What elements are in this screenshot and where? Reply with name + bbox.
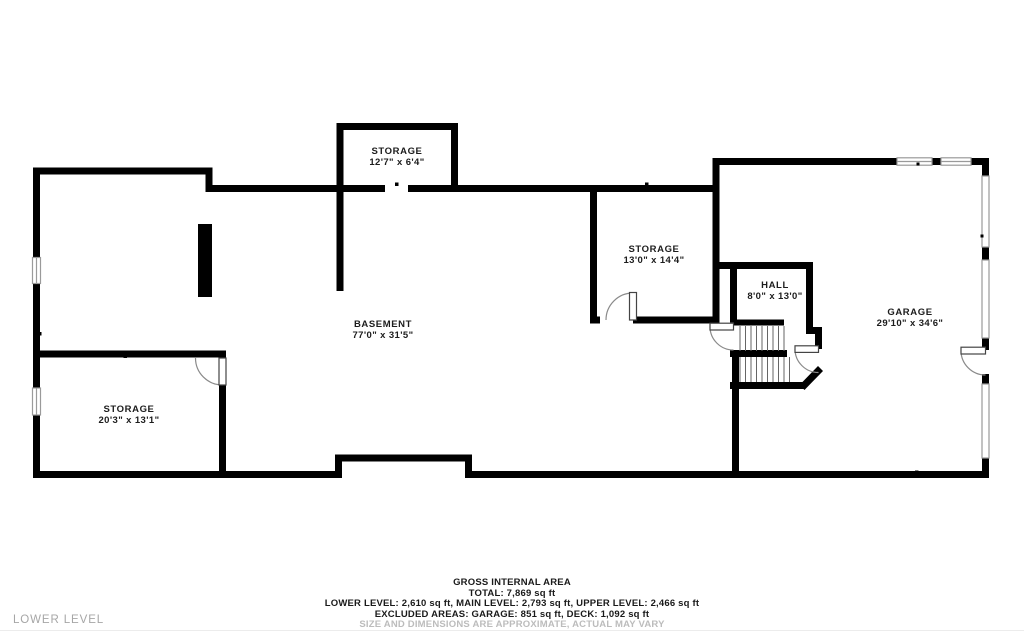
- bottom-divider: [0, 630, 1024, 631]
- room-dims: 77'0" x 31'5": [313, 330, 453, 341]
- summary-title: GROSS INTERNAL AREA: [0, 578, 1024, 588]
- door-leaf-left-storage: [219, 358, 226, 385]
- door-leaf-mid-storage: [630, 293, 637, 321]
- chimney-pillar: [198, 224, 212, 297]
- door-leaf-stair-garage: [795, 346, 819, 353]
- floor-plan-page: STORAGE 12'7" x 6'4" STORAGE 13'0" x 14'…: [0, 0, 1024, 639]
- room-name: STORAGE: [584, 244, 724, 255]
- room-dims: 20'3" x 13'1": [59, 415, 199, 426]
- room-name: STORAGE: [327, 146, 467, 157]
- summary-total: TOTAL: 7,869 sq ft: [0, 589, 1024, 599]
- area-summary: GROSS INTERNAL AREA TOTAL: 7,869 sq ft L…: [0, 578, 1024, 631]
- room-dims: 8'0" x 13'0": [705, 291, 845, 302]
- summary-excluded: EXCLUDED AREAS: GARAGE: 851 sq ft, DECK:…: [0, 610, 1024, 620]
- room-dims: 12'7" x 6'4": [327, 157, 467, 168]
- summary-disclaimer: SIZE AND DIMENSIONS ARE APPROXIMATE, ACT…: [0, 620, 1024, 630]
- room-name: GARAGE: [840, 307, 980, 318]
- room-name: STORAGE: [59, 404, 199, 415]
- room-name: BASEMENT: [313, 319, 453, 330]
- room-dims: 13'0" x 14'4": [584, 255, 724, 266]
- room-label-storage-top: STORAGE 12'7" x 6'4": [327, 146, 467, 168]
- door-leaf-garage-right: [961, 347, 986, 354]
- room-dims: 29'10" x 34'6": [840, 318, 980, 329]
- room-label-garage: GARAGE 29'10" x 34'6": [840, 307, 980, 329]
- summary-levels: LOWER LEVEL: 2,610 sq ft, MAIN LEVEL: 2,…: [0, 599, 1024, 609]
- room-label-storage-mid: STORAGE 13'0" x 14'4": [584, 244, 724, 266]
- room-name: HALL: [705, 280, 845, 291]
- room-label-hall: HALL 8'0" x 13'0": [705, 280, 845, 302]
- floor-level-label: LOWER LEVEL: [13, 614, 104, 626]
- door-leaf-basement: [710, 323, 734, 330]
- room-label-storage-left: STORAGE 20'3" x 13'1": [59, 404, 199, 426]
- room-label-basement: BASEMENT 77'0" x 31'5": [313, 319, 453, 341]
- garage-right-thin-wall: [982, 176, 989, 458]
